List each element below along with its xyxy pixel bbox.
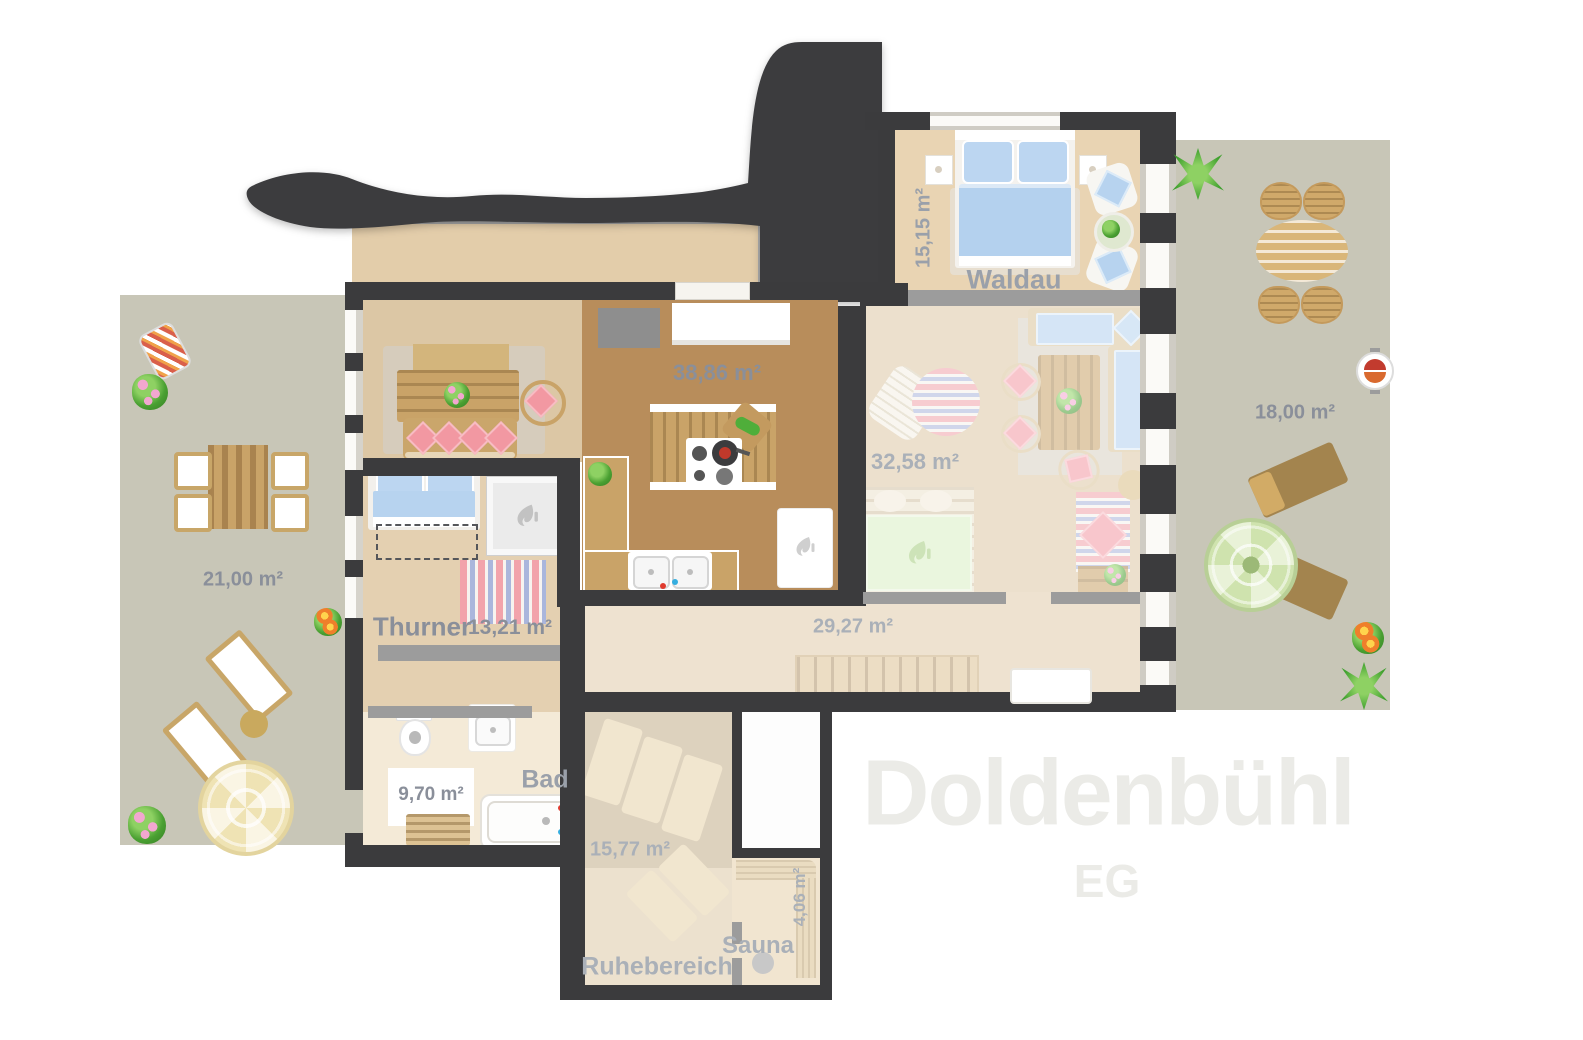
room-white-floor xyxy=(742,712,820,848)
room-label-relax-area: 15,77 m² xyxy=(590,839,670,862)
room-label-thurner-area: 13,21 m² xyxy=(468,616,552,640)
terrace-oval-table xyxy=(1256,220,1348,282)
flame-icon xyxy=(509,499,543,533)
faucet-hot-icon xyxy=(660,583,666,589)
room-label-bath-name: Bad xyxy=(521,766,568,795)
hillside-shape xyxy=(240,35,895,305)
flowers-icon xyxy=(1352,622,1384,654)
room-label-thurner-name: Thurner xyxy=(373,612,471,643)
faucet-cold-icon xyxy=(672,579,678,585)
lounge-round-rug xyxy=(912,368,980,436)
terrace-chair xyxy=(271,452,309,490)
window-bench xyxy=(1010,668,1092,704)
round-bbq-grill xyxy=(1356,352,1394,390)
wicker-chair xyxy=(1303,182,1345,220)
room-label-lounge-area: 32,58 m² xyxy=(871,449,959,475)
window xyxy=(345,577,363,618)
sliding-door xyxy=(863,592,1006,604)
window xyxy=(345,433,363,470)
sofa xyxy=(403,418,517,460)
sauna-door xyxy=(732,958,742,985)
room-label-hallway-area: 29,27 m² xyxy=(813,616,893,639)
bush-icon xyxy=(128,806,166,844)
bush-icon xyxy=(132,374,168,410)
window xyxy=(930,112,1060,130)
wicker-chair xyxy=(1301,286,1343,324)
sideboard xyxy=(413,344,509,370)
room-label-terrace-right-area: 18,00 m² xyxy=(1255,402,1335,425)
flame-icon xyxy=(789,532,819,562)
room-label-relax-name: Ruhebereich xyxy=(581,953,732,982)
shower xyxy=(487,477,565,555)
lounge-chair xyxy=(1001,363,1041,401)
parasol xyxy=(1204,518,1298,612)
nightstand xyxy=(925,155,953,185)
double-bed xyxy=(955,130,1075,268)
entry-sideboard xyxy=(672,303,790,345)
window xyxy=(1140,514,1176,554)
cabinet-plant-icon xyxy=(588,462,612,486)
room-label-waldau-name: Waldau xyxy=(966,265,1061,296)
wicker-chair xyxy=(1260,182,1302,220)
window xyxy=(1140,661,1176,685)
table-plant-icon xyxy=(444,382,470,408)
doormat xyxy=(598,308,660,348)
stove xyxy=(686,438,742,490)
plant-table xyxy=(1094,212,1134,252)
flame-icon xyxy=(900,535,936,571)
sliding-door xyxy=(378,645,570,661)
window xyxy=(345,310,363,353)
window xyxy=(1140,243,1176,288)
towel-bench xyxy=(406,814,470,846)
watermark-floor: EG xyxy=(1074,854,1140,908)
room-label-terrace-left-area: 21,00 m² xyxy=(203,569,283,592)
kitchen-sink xyxy=(628,552,712,590)
window xyxy=(1140,334,1176,393)
room-label-sauna-name: Sauna xyxy=(722,932,794,960)
lounge-chair xyxy=(1001,415,1041,453)
room-label-waldau-area: 15,15 m² xyxy=(913,188,936,268)
heater xyxy=(777,508,833,588)
striped-rug xyxy=(460,560,546,624)
window xyxy=(345,371,363,415)
sliding-door xyxy=(1051,592,1140,604)
watermark-title: Doldenbühl xyxy=(862,740,1353,847)
terrace-chair xyxy=(271,494,309,532)
pan-icon xyxy=(712,440,738,466)
flowers-icon xyxy=(314,608,342,636)
green-bed xyxy=(866,515,972,591)
room-label-bath-area: 9,70 m² xyxy=(398,784,463,806)
terrace-table xyxy=(208,445,268,529)
bath-partition xyxy=(368,706,532,718)
room-label-living-area: 38,86 m² xyxy=(673,360,761,386)
room-label-sauna-area: 4,06 m² xyxy=(790,868,810,927)
wicker-chair xyxy=(1258,286,1300,324)
window xyxy=(1140,592,1176,627)
floor-plan: 38,86 m² Waldau 15,15 m² Thurner 13,21 m… xyxy=(0,0,1583,1040)
parasol xyxy=(198,760,294,856)
dining-chair xyxy=(520,380,566,426)
pullout-bed-outline xyxy=(376,524,478,560)
lounge-sofa xyxy=(1028,308,1148,346)
side-table xyxy=(240,710,268,738)
terrace-chair xyxy=(174,452,212,490)
lounge-daybed xyxy=(1076,492,1130,572)
window xyxy=(1140,164,1176,213)
entry-door xyxy=(675,282,750,300)
lounge-table-flowers-icon xyxy=(1056,388,1082,414)
lounge-flowers-icon xyxy=(1104,564,1126,586)
window xyxy=(1140,429,1176,465)
terrace-chair xyxy=(174,494,212,532)
window xyxy=(345,516,363,560)
